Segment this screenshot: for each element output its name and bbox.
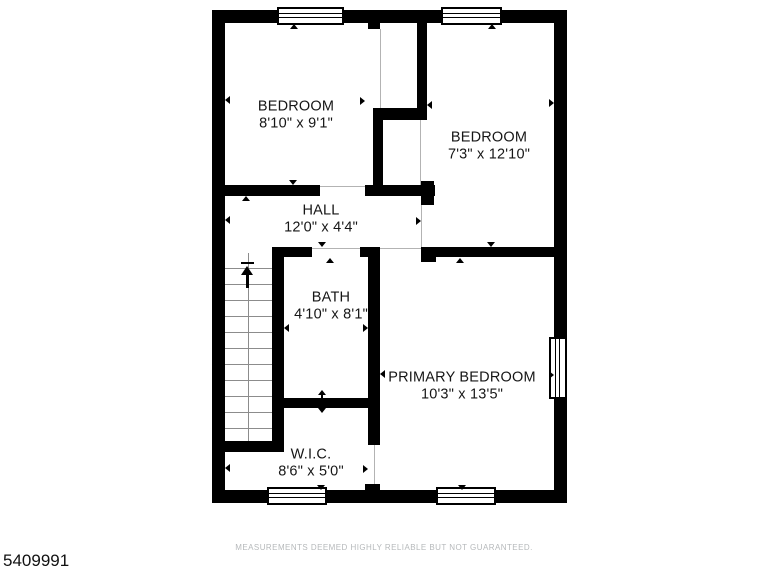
disclaimer-text: MEASUREMENTS DEEMED HIGHLY RELIABLE BUT … (235, 543, 533, 552)
room-dimensions: 12'0" x 4'4" (284, 219, 358, 236)
measure-arrow-icon (380, 370, 385, 378)
measure-arrow-icon (242, 196, 250, 201)
door-arrow-icon (318, 242, 326, 247)
window-symbol-bottom-right (436, 487, 496, 505)
opening-primary-door (380, 248, 421, 249)
measure-arrow-icon (225, 464, 230, 472)
measure-arrow-icon (488, 24, 496, 29)
measure-arrow-icon (290, 24, 298, 29)
room-name: PRIMARY BEDROOM (388, 370, 536, 387)
wall-bedroom-divider-upper (417, 23, 427, 120)
wall-stairs-right (272, 247, 284, 452)
listing-id: 5409991 (3, 551, 69, 571)
wall-primary-top (421, 247, 567, 257)
floorplan-page: BEDROOM 8'10" x 9'1" BEDROOM 7'3" x 12'1… (0, 0, 768, 576)
room-label-bath: BATH 4'10" x 8'1" (294, 290, 368, 323)
measure-arrow-icon (326, 258, 334, 263)
measure-arrow-icon (225, 216, 230, 224)
wall-outer-top (212, 10, 567, 23)
measure-arrow-icon (456, 258, 464, 263)
opening-bedroom1-door (320, 186, 365, 187)
measure-arrow-icon (427, 101, 432, 109)
room-label-bedroom2: BEDROOM 7'3" x 12'10" (448, 130, 530, 163)
room-dimensions: 8'6" x 5'0" (278, 463, 344, 480)
room-dimensions: 7'3" x 12'10" (448, 146, 530, 163)
door-arrowhead-icon (318, 408, 326, 413)
wall-bath-bottom (272, 398, 368, 408)
opening-bedroom2-door (421, 205, 422, 247)
room-label-hall: HALL 12'0" x 4'4" (284, 203, 358, 236)
measure-arrow-icon (487, 242, 495, 247)
room-dimensions: 4'10" x 8'1" (294, 306, 368, 323)
measure-arrow-icon (289, 180, 297, 185)
wall-bedroom1-bottom (212, 185, 320, 196)
wall-bath-right (368, 247, 380, 445)
opening-bedroom1-closet (380, 29, 381, 108)
wall-hall-right-upper (421, 181, 434, 205)
measure-arrow-icon (363, 465, 368, 473)
room-name: W.I.C. (278, 447, 344, 464)
measure-arrow-icon (549, 371, 554, 379)
measure-arrow-icon (458, 485, 466, 490)
door-arrowhead-icon (318, 390, 326, 395)
wall-closet-top-stub (368, 23, 380, 29)
room-label-bedroom1: BEDROOM 8'10" x 9'1" (258, 99, 334, 132)
room-name: HALL (284, 203, 358, 220)
window-symbol-top-left (277, 7, 344, 25)
measure-arrow-icon (284, 324, 289, 332)
room-dimensions: 8'10" x 9'1" (258, 115, 334, 132)
measure-arrow-icon (225, 96, 230, 104)
wall-outer-bottom (212, 490, 567, 503)
room-name: BEDROOM (258, 99, 334, 116)
room-label-primary-bedroom: PRIMARY BEDROOM 10'3" x 13'5" (388, 370, 536, 403)
wall-closet-left (373, 108, 383, 196)
window-symbol-top-right (441, 7, 502, 25)
door-arrow-icon (321, 395, 323, 409)
measure-arrow-icon (360, 97, 365, 105)
stairs-up-arrow-stem (246, 274, 249, 288)
room-name: BATH (294, 290, 368, 307)
measure-arrow-icon (317, 485, 325, 490)
opening-wic-door (374, 445, 375, 484)
room-name: BEDROOM (448, 130, 530, 147)
wall-primary-door-jamb (421, 257, 436, 262)
room-label-wic: W.I.C. 8'6" x 5'0" (278, 447, 344, 480)
measure-arrow-icon (549, 99, 554, 107)
stairs-up-arrow-icon (241, 262, 254, 264)
door-arrow-icon (416, 217, 421, 225)
opening-bath-door (312, 248, 360, 249)
wall-stairs-bottom (212, 440, 284, 452)
wall-wic-right-stub (365, 484, 380, 491)
opening-bedroom2-closet (420, 120, 421, 185)
room-dimensions: 10'3" x 13'5" (388, 386, 536, 403)
wall-outer-left (212, 10, 225, 503)
window-symbol-right (549, 337, 567, 399)
measure-arrow-icon (363, 324, 368, 332)
